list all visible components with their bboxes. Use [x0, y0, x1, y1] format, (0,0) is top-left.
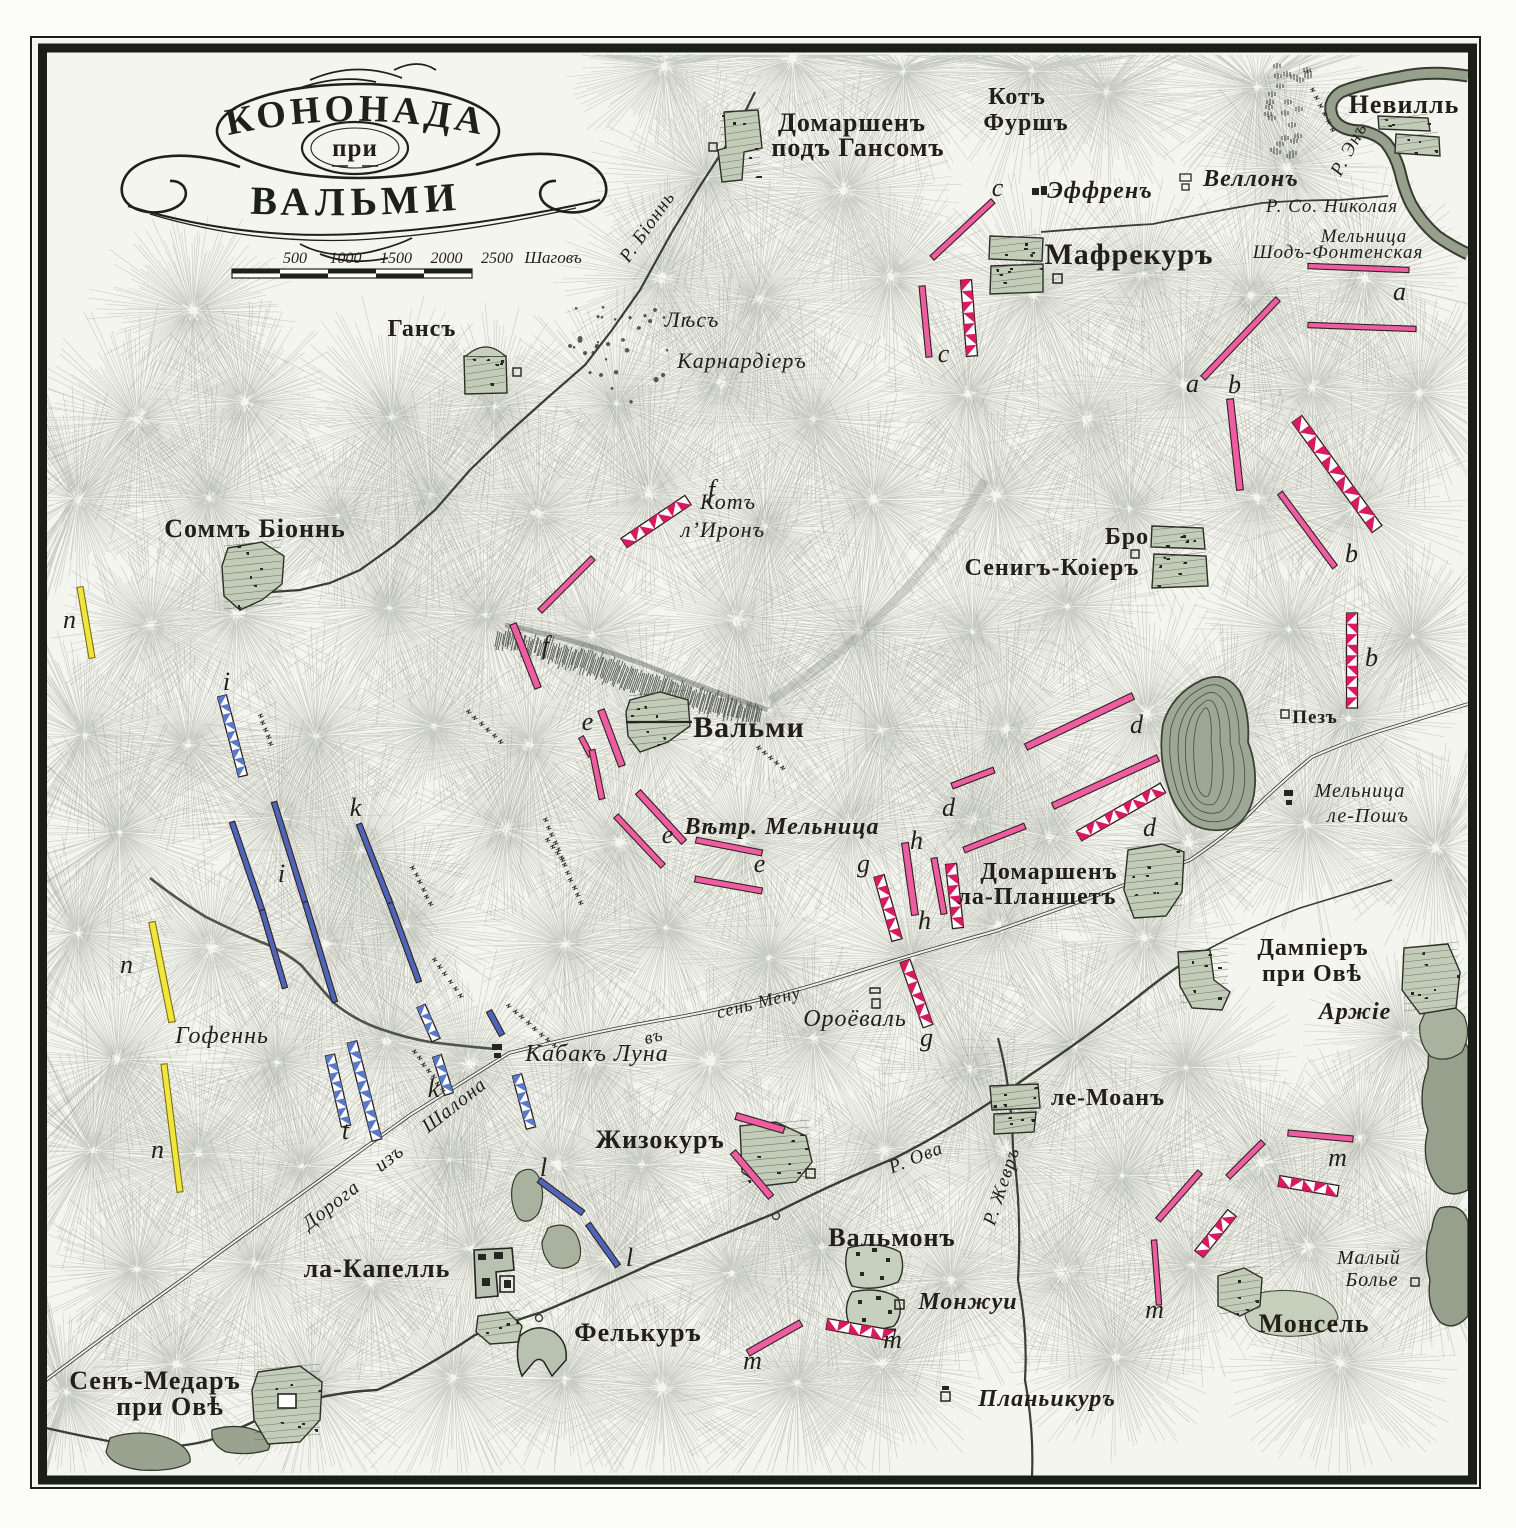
svg-text:ле-Пошъ: ле-Пошъ	[1326, 805, 1409, 827]
svg-text:ла-Капелль: ла-Капелль	[304, 1254, 451, 1283]
svg-text:Вальми: Вальми	[693, 711, 805, 744]
svg-text:g: g	[920, 1023, 934, 1052]
svg-text:m: m	[743, 1346, 763, 1375]
svg-text:l: l	[626, 1243, 634, 1272]
svg-text:t: t	[342, 1116, 350, 1145]
svg-text:Планьикуръ: Планьикуръ	[977, 1386, 1116, 1412]
svg-text:i: i	[278, 859, 286, 888]
svg-text:Шодъ-Фонтенская: Шодъ-Фонтенская	[1252, 242, 1424, 263]
svg-text:при Овѣ: при Овѣ	[1262, 961, 1362, 987]
svg-text:Шаговъ: Шаговъ	[523, 248, 582, 267]
svg-text:подъ Гансомъ: подъ Гансомъ	[771, 133, 944, 162]
svg-text:d: d	[942, 793, 956, 822]
svg-text:ла-Планшетъ: ла-Планшетъ	[957, 884, 1116, 910]
svg-text:e: e	[754, 849, 767, 878]
svg-text:b: b	[1228, 370, 1242, 399]
svg-text:l: l	[540, 1153, 548, 1182]
svg-text:Гофеннь: Гофеннь	[174, 1023, 269, 1049]
svg-text:b: b	[1345, 539, 1359, 568]
svg-text:Мафрекуръ: Мафрекуръ	[1044, 238, 1213, 271]
svg-text:1500: 1500	[380, 250, 412, 267]
svg-text:Соммъ Біоннь: Соммъ Біоннь	[164, 514, 345, 543]
svg-text:n: n	[120, 950, 134, 979]
svg-text:a: a	[1186, 369, 1200, 398]
svg-text:Аржіе: Аржіе	[1317, 999, 1392, 1025]
svg-text:b: b	[1365, 643, 1379, 672]
svg-text:m: m	[883, 1325, 903, 1354]
svg-text:Невилль: Невилль	[1349, 90, 1460, 119]
svg-text:Гансъ: Гансъ	[388, 316, 457, 342]
svg-text:Монсель: Монсель	[1259, 1309, 1370, 1338]
svg-text:k: k	[350, 793, 363, 822]
svg-text:h: h	[918, 906, 932, 935]
svg-text:Вѣтр. Мельница: Вѣтр. Мельница	[683, 814, 879, 840]
svg-text:ВАЛЬМИ: ВАЛЬМИ	[250, 174, 463, 225]
svg-text:Вальмонъ: Вальмонъ	[828, 1223, 955, 1252]
svg-text:m: m	[1145, 1295, 1165, 1324]
svg-text:c: c	[992, 173, 1005, 202]
svg-text:Домаршенъ: Домаршенъ	[980, 859, 1117, 885]
svg-text:Фелькуръ: Фелькуръ	[574, 1318, 701, 1347]
svg-text:Болье: Болье	[1345, 1269, 1399, 1291]
svg-text:d: d	[1130, 710, 1144, 739]
svg-text:л’Иронъ: л’Иронъ	[679, 517, 765, 542]
svg-text:Лѣсъ: Лѣсъ	[664, 307, 719, 332]
svg-text:k: k	[428, 1074, 441, 1103]
svg-text:при: при	[332, 135, 378, 162]
svg-text:g: g	[857, 849, 871, 878]
svg-text:ле-Моанъ: ле-Моанъ	[1051, 1085, 1165, 1111]
svg-text:a: a	[1393, 277, 1407, 306]
svg-text:i: i	[223, 667, 231, 696]
svg-text:Монжуи: Монжуи	[917, 1289, 1017, 1315]
svg-text:e: e	[662, 820, 675, 849]
svg-text:при Овѣ: при Овѣ	[116, 1392, 224, 1421]
svg-text:2000: 2000	[431, 250, 463, 267]
svg-text:Дампіеръ: Дампіеръ	[1257, 935, 1368, 961]
svg-text:Малый: Малый	[1336, 1247, 1401, 1269]
svg-text:Эффренъ: Эффренъ	[1047, 178, 1153, 204]
svg-text:n: n	[63, 605, 77, 634]
svg-text:n: n	[151, 1135, 165, 1164]
svg-text:Сенъ-Медаръ: Сенъ-Медаръ	[69, 1366, 241, 1395]
svg-text:1000: 1000	[330, 250, 362, 267]
svg-text:m: m	[1328, 1143, 1348, 1172]
svg-text:Бро: Бро	[1105, 524, 1149, 550]
svg-text:Ороёваль: Ороёваль	[803, 1006, 907, 1032]
svg-text:h: h	[910, 826, 924, 855]
svg-text:Р. Со. Николая: Р. Со. Николая	[1265, 196, 1398, 217]
svg-text:Мельница: Мельница	[1314, 780, 1406, 802]
svg-text:500: 500	[283, 250, 307, 267]
svg-text:c: c	[938, 339, 951, 368]
svg-text:2500: 2500	[481, 250, 513, 267]
svg-text:Фуршъ: Фуршъ	[983, 110, 1068, 136]
svg-text:Карнардіеръ: Карнардіеръ	[676, 348, 807, 373]
svg-text:e: e	[582, 707, 595, 736]
svg-text:Пезъ: Пезъ	[1292, 707, 1338, 728]
svg-text:Сенигъ-Коіеръ: Сенигъ-Коіеръ	[965, 555, 1140, 581]
svg-text:Котъ: Котъ	[988, 84, 1046, 110]
svg-text:Жизокуръ: Жизокуръ	[595, 1125, 724, 1154]
svg-text:d: d	[1143, 813, 1157, 842]
svg-text:Веллонъ: Веллонъ	[1202, 166, 1299, 192]
